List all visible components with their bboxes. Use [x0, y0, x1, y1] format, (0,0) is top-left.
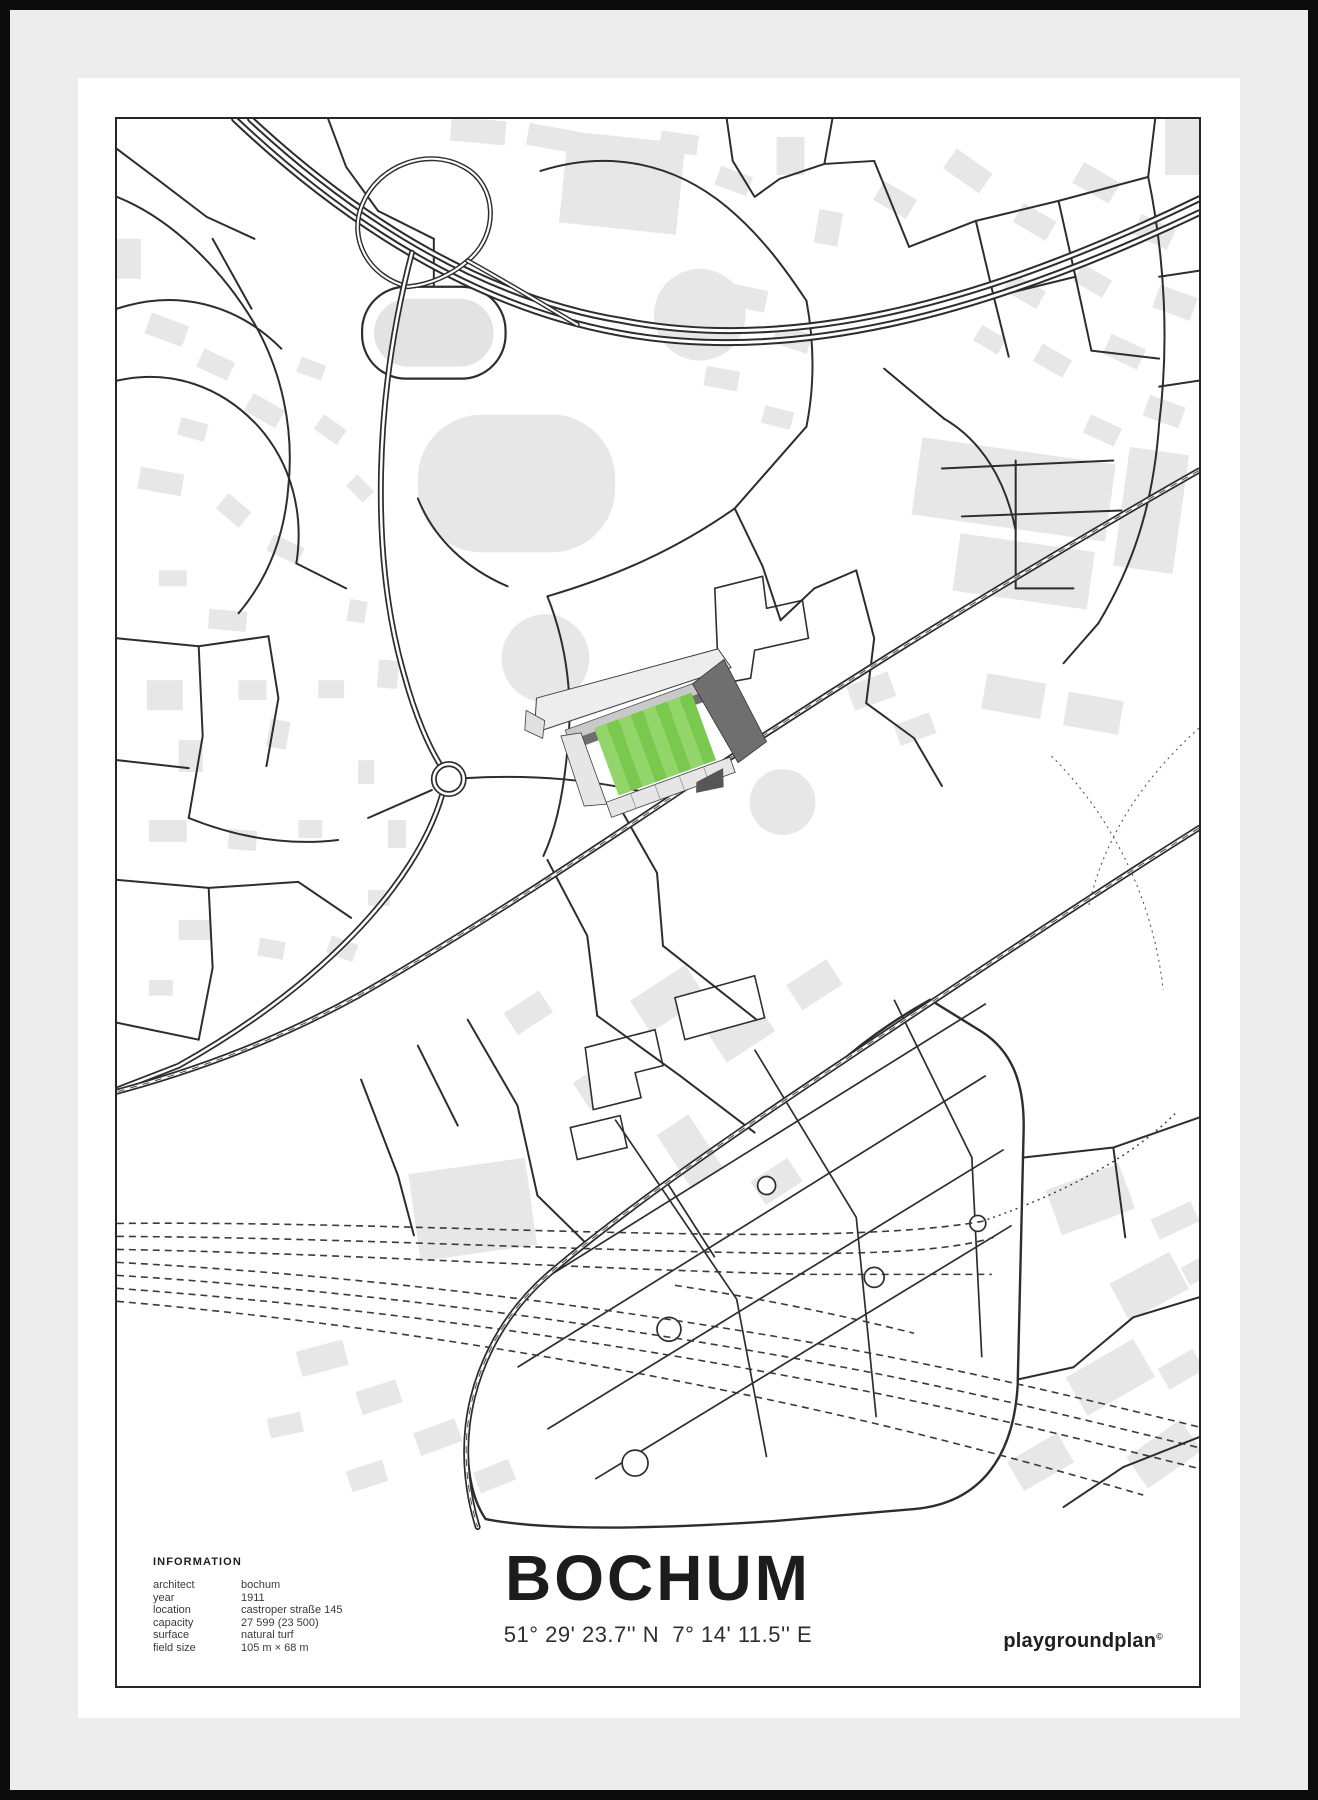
info-row-location: location castroper straße 145	[153, 1604, 413, 1617]
framed-poster: INFORMATION architect bochum year 1911 l…	[0, 0, 1318, 1800]
title-block: BOCHUM 51° 29' 23.7'' N 7° 14' 11.5'' E	[504, 1546, 812, 1648]
city-map	[117, 119, 1199, 1530]
information-block: INFORMATION architect bochum year 1911 l…	[153, 1556, 413, 1655]
information-heading: INFORMATION	[153, 1556, 413, 1568]
info-row-architect: architect bochum	[153, 1579, 413, 1592]
page-title: BOCHUM	[504, 1546, 812, 1610]
poster-design-border: INFORMATION architect bochum year 1911 l…	[115, 117, 1201, 1688]
info-row-capacity: capacity 27 599 (23 500)	[153, 1617, 413, 1630]
brand-logo: playgroundplan©	[1003, 1630, 1163, 1653]
info-row-field-size: field size 105 m × 68 m	[153, 1642, 413, 1655]
info-row-surface: surface natural turf	[153, 1629, 413, 1642]
stadium-coordinates: 51° 29' 23.7'' N 7° 14' 11.5'' E	[504, 1622, 812, 1648]
info-row-year: year 1911	[153, 1592, 413, 1605]
poster-footer: INFORMATION architect bochum year 1911 l…	[117, 1530, 1199, 1686]
bochum-street-map	[117, 119, 1199, 1530]
brand-logo-mark: ©	[1156, 1631, 1163, 1641]
poster-sheet: INFORMATION architect bochum year 1911 l…	[78, 78, 1240, 1718]
brand-logo-text: playgroundplan	[1003, 1630, 1156, 1652]
